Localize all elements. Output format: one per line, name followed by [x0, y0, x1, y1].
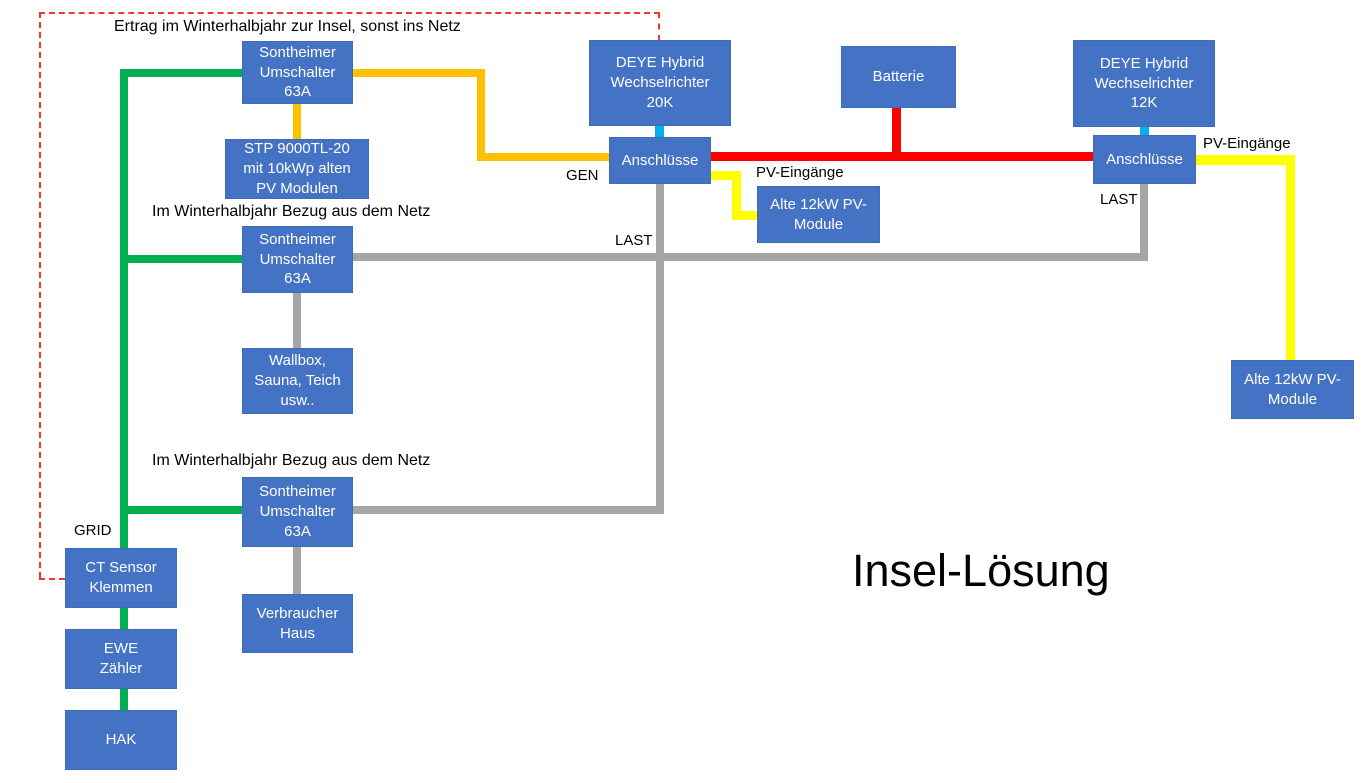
sontheimer-umschalter-3-label: Sontheimer Umschalter 63A — [259, 482, 336, 541]
alte-pv-module-links: Alte 12kW PV- Module — [757, 186, 880, 243]
verbraucher-verbindung — [293, 547, 301, 594]
ct-sensor-klemmen: CT Sensor Klemmen — [65, 548, 177, 608]
sontheimer-umschalter-3: Sontheimer Umschalter 63A — [242, 477, 353, 547]
deye-hybrid-20k: DEYE Hybrid Wechselrichter 20K — [589, 40, 731, 126]
link-deye20k-anschluesse — [655, 126, 664, 137]
dash-zu-deye — [658, 12, 660, 41]
wallbox-sauna-teich-label: Wallbox, Sauna, Teich usw.. — [254, 351, 340, 410]
grid-branch-unten — [120, 506, 242, 514]
ewe-zaehler-label: EWE Zähler — [100, 639, 143, 679]
ertrag-note: Ertrag im Winterhalbjahr zur Insel, sons… — [114, 18, 461, 36]
batterie: Batterie — [841, 46, 956, 108]
gen-label: GEN — [566, 168, 599, 185]
stp-verbindung — [293, 104, 301, 139]
alte-pv-module-rechts: Alte 12kW PV- Module — [1231, 360, 1354, 419]
batterie-bus — [711, 152, 1093, 161]
wallbox-sauna-teich: Wallbox, Sauna, Teich usw.. — [242, 348, 353, 414]
verbraucher-haus: Verbraucher Haus — [242, 594, 353, 653]
anschluesse-links-label: Anschlüsse — [622, 151, 699, 171]
hak-label: HAK — [106, 730, 137, 750]
alte-pv-module-links-label: Alte 12kW PV- Module — [770, 195, 867, 235]
grid-branch-oben — [120, 69, 242, 77]
dash-oben — [39, 12, 660, 14]
last-label-rechts: LAST — [1100, 192, 1138, 209]
pv-leitung-rechts-1 — [1196, 155, 1295, 165]
deye-hybrid-12k-label: DEYE Hybrid Wechselrichter 12K — [1095, 54, 1194, 113]
wallbox-verbindung — [293, 293, 301, 349]
hak: HAK — [65, 710, 177, 770]
dash-links — [39, 12, 41, 578]
anschluesse-rechts: Anschlüsse — [1093, 135, 1196, 184]
last-abgang-rechts — [1140, 184, 1148, 261]
winter-note-2: Im Winterhalbjahr Bezug aus dem Netz — [152, 452, 430, 470]
diagram-canvas: Sontheimer Umschalter 63ASTP 9000TL-20 m… — [0, 0, 1367, 783]
ewe-zaehler: EWE Zähler — [65, 629, 177, 689]
gen-line-vertikal — [477, 69, 485, 161]
verbraucher-haus-label: Verbraucher Haus — [257, 604, 339, 644]
alte-pv-module-rechts-label: Alte 12kW PV- Module — [1244, 370, 1341, 410]
anschluesse-rechts-label: Anschlüsse — [1106, 150, 1183, 170]
sontheimer-umschalter-1-label: Sontheimer Umschalter 63A — [259, 43, 336, 102]
last-abgang-links — [656, 184, 664, 514]
sontheimer-umschalter-1: Sontheimer Umschalter 63A — [242, 41, 353, 104]
pv-leitung-rechts-2 — [1286, 155, 1295, 360]
pv-eingaenge-links: PV-Eingänge — [756, 165, 844, 182]
last-bus — [353, 253, 1148, 261]
grid-branch-mitte — [120, 255, 242, 263]
last-label-links: LAST — [615, 233, 653, 250]
stp-9000tl-20-label: STP 9000TL-20 mit 10kWp alten PV Modulen — [243, 139, 351, 198]
anschluesse-links: Anschlüsse — [609, 137, 711, 184]
pv-eingaenge-rechts: PV-Eingänge — [1203, 136, 1291, 153]
sontheimer-umschalter-2: Sontheimer Umschalter 63A — [242, 226, 353, 293]
sontheimer-umschalter-2-label: Sontheimer Umschalter 63A — [259, 230, 336, 289]
last-zweig-unten — [353, 506, 664, 514]
link-deye12k-anschluesse — [1140, 127, 1149, 135]
gen-line-oben — [353, 69, 485, 77]
diagram-title: Insel-Lösung — [852, 546, 1110, 596]
grid-trunk-line — [120, 69, 128, 710]
deye-hybrid-12k: DEYE Hybrid Wechselrichter 12K — [1073, 40, 1215, 127]
batterie-abzweig — [892, 108, 901, 161]
pv-leitung-links-3 — [732, 211, 757, 220]
ct-sensor-klemmen-label: CT Sensor Klemmen — [85, 558, 156, 598]
grid-label: GRID — [74, 523, 112, 540]
dash-zu-ct-sensor — [39, 578, 65, 580]
deye-hybrid-20k-label: DEYE Hybrid Wechselrichter 20K — [611, 53, 710, 112]
gen-line-unten — [477, 153, 609, 161]
winter-note-1: Im Winterhalbjahr Bezug aus dem Netz — [152, 203, 430, 221]
batterie-label: Batterie — [873, 67, 925, 87]
stp-9000tl-20: STP 9000TL-20 mit 10kWp alten PV Modulen — [225, 139, 369, 199]
